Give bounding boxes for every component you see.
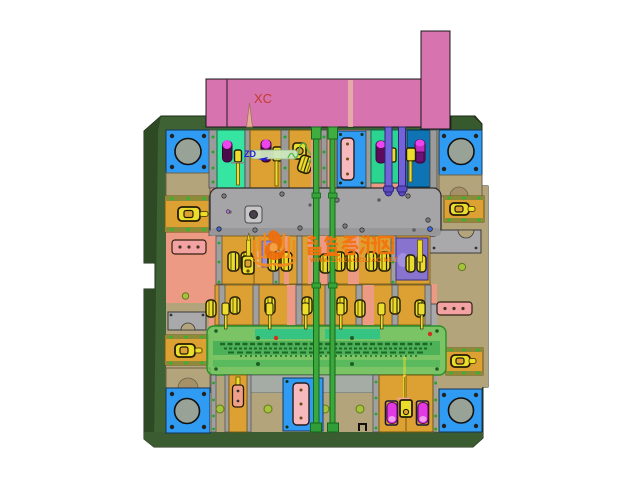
svg-text:ZD: ZD	[244, 149, 256, 159]
svg-text:WWW.ZHIZAOZILIAO.NET: WWW.ZHIZAOZILIAO.NET	[310, 257, 398, 264]
svg-text:XC: XC	[254, 91, 272, 106]
